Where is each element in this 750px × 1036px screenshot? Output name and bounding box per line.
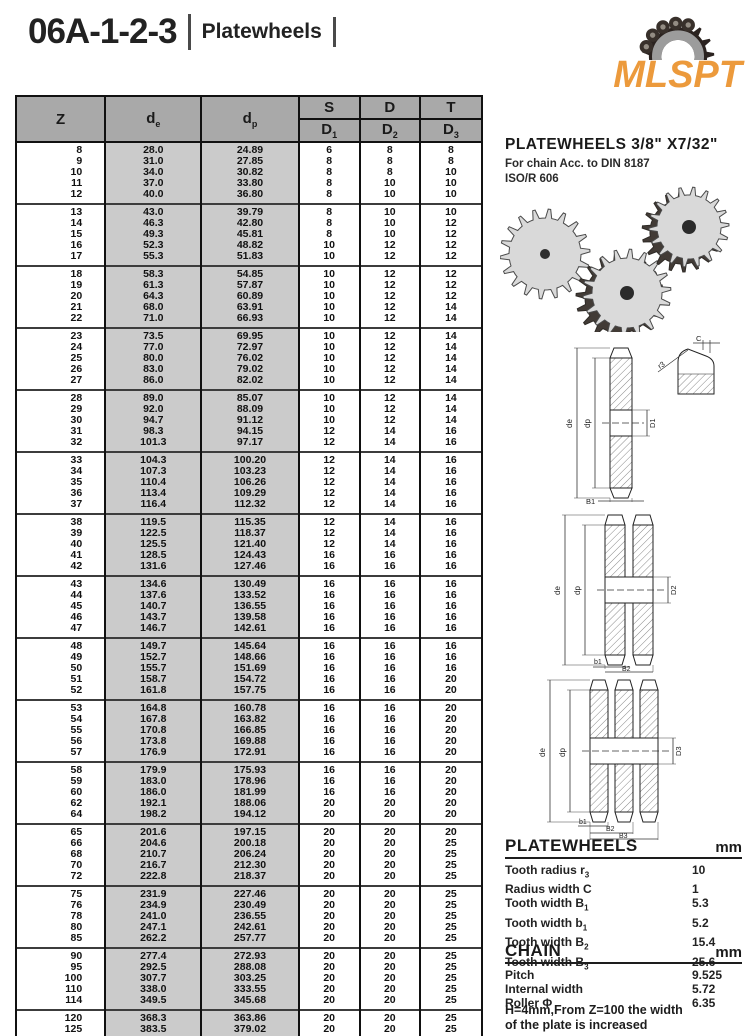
sprockets-photo [500, 182, 745, 332]
cell-z: 68 [16, 849, 105, 860]
cell-d2: 12 [360, 251, 420, 266]
cell-z: 33 [16, 452, 105, 466]
cell-z: 72 [16, 871, 105, 886]
cell-d3: 20 [420, 809, 482, 824]
cell-z: 45 [16, 601, 105, 612]
table-row: 72222.8218.37202025 [16, 871, 482, 886]
cell-de: 277.4 [105, 948, 201, 962]
table-row: 120368.3363.86202025 [16, 1010, 482, 1024]
cell-z: 16 [16, 240, 105, 251]
cell-d3: 14 [420, 390, 482, 404]
svg-text:b1: b1 [579, 819, 587, 826]
cell-d3: 25 [420, 995, 482, 1010]
cell-d3: 16 [420, 561, 482, 576]
table-row: 1240.036.8081010 [16, 189, 482, 204]
cell-d3: 16 [420, 514, 482, 528]
cell-de: 104.3 [105, 452, 201, 466]
cell-d1: 20 [299, 933, 360, 948]
cell-z: 38 [16, 514, 105, 528]
cell-z: 95 [16, 962, 105, 973]
cell-z: 66 [16, 838, 105, 849]
table-row: 37116.4112.32121416 [16, 499, 482, 514]
col-header-d3: D3 [420, 119, 482, 142]
title-divider [333, 17, 336, 47]
cell-de: 101.3 [105, 437, 201, 452]
cell-d1: 16 [299, 561, 360, 576]
cell-z: 90 [16, 948, 105, 962]
cell-de: 28.0 [105, 142, 201, 156]
cell-z: 43 [16, 576, 105, 590]
cell-dp: 157.75 [201, 685, 298, 700]
cell-dp: 175.93 [201, 762, 298, 776]
cell-de: 201.6 [105, 824, 201, 838]
cell-d1: 8 [299, 204, 360, 218]
cell-dp: 172.91 [201, 747, 298, 762]
cell-z: 49 [16, 652, 105, 663]
plate-width-note: H=4mm,From Z=100 the width of the plate … [505, 1003, 683, 1033]
cell-d3: 14 [420, 375, 482, 390]
cell-d1: 6 [299, 142, 360, 156]
cell-d2: 12 [360, 328, 420, 342]
cell-de: 149.7 [105, 638, 201, 652]
table-row: 75231.9227.46202025 [16, 886, 482, 900]
cell-z: 50 [16, 663, 105, 674]
table-row: 90277.4272.93202025 [16, 948, 482, 962]
cell-dp: 194.12 [201, 809, 298, 824]
cell-z: 29 [16, 404, 105, 415]
cell-d1: 20 [299, 886, 360, 900]
cell-z: 80 [16, 922, 105, 933]
cell-de: 119.5 [105, 514, 201, 528]
cell-dp: 69.95 [201, 328, 298, 342]
table-row: 38119.5115.35121416 [16, 514, 482, 528]
cell-z: 34 [16, 466, 105, 477]
spec-title: PLATEWHEELS [505, 836, 638, 856]
svg-text:D1: D1 [648, 418, 657, 428]
cell-z: 10 [16, 167, 105, 178]
cell-dp: 66.93 [201, 313, 298, 328]
cell-z: 100 [16, 973, 105, 984]
cell-d2: 20 [360, 871, 420, 886]
spec-header: CHAIN mm [505, 941, 742, 964]
cell-d3: 16 [420, 499, 482, 514]
table-row: 2271.066.93101214 [16, 313, 482, 328]
cell-dp: 54.85 [201, 266, 298, 280]
table-row: 33104.3100.20121416 [16, 452, 482, 466]
svg-text:dp: dp [558, 748, 567, 757]
table-row: 53164.8160.78161620 [16, 700, 482, 714]
cell-d2: 16 [360, 685, 420, 700]
col-header-d2: D2 [360, 119, 420, 142]
catalog-page: 06A-1-2-3 Platewheels MLSPT Z [0, 0, 750, 1036]
cell-z: 54 [16, 714, 105, 725]
cell-z: 58 [16, 762, 105, 776]
col-header-s: S [299, 96, 360, 119]
svg-text:C: C [696, 336, 702, 343]
cell-z: 76 [16, 900, 105, 911]
cell-dp: 379.02 [201, 1024, 298, 1036]
cell-z: 9 [16, 156, 105, 167]
cell-d2: 14 [360, 437, 420, 452]
cell-d2: 14 [360, 499, 420, 514]
cell-d1: 20 [299, 995, 360, 1010]
cell-z: 36 [16, 488, 105, 499]
cell-dp: 145.64 [201, 638, 298, 652]
table-row: 52161.8157.75161620 [16, 685, 482, 700]
cell-z: 27 [16, 375, 105, 390]
cell-d3: 12 [420, 266, 482, 280]
cell-d2: 16 [360, 576, 420, 590]
table-row: 42131.6127.46161616 [16, 561, 482, 576]
cell-z: 24 [16, 342, 105, 353]
spec-unit: mm [715, 839, 742, 856]
cell-d1: 10 [299, 375, 360, 390]
table-row: 2373.569.95101214 [16, 328, 482, 342]
cell-de: 368.3 [105, 1010, 201, 1024]
cell-d3: 16 [420, 623, 482, 638]
cell-d3: 20 [420, 762, 482, 776]
svg-text:D3: D3 [674, 746, 683, 756]
cell-de: 55.3 [105, 251, 201, 266]
cell-d3: 14 [420, 313, 482, 328]
cell-z: 22 [16, 313, 105, 328]
cell-z: 110 [16, 984, 105, 995]
cell-z: 53 [16, 700, 105, 714]
cell-d2: 12 [360, 313, 420, 328]
cell-d3: 25 [420, 871, 482, 886]
spec-row: Internal width5.72 [505, 982, 742, 996]
cell-d3: 14 [420, 328, 482, 342]
cell-z: 47 [16, 623, 105, 638]
cell-d1: 20 [299, 871, 360, 886]
cell-z: 46 [16, 612, 105, 623]
cell-de: 131.6 [105, 561, 201, 576]
cell-d1: 10 [299, 251, 360, 266]
cell-z: 39 [16, 528, 105, 539]
cell-de: 222.8 [105, 871, 201, 886]
col-header-z: Z [16, 96, 105, 142]
cell-de: 58.3 [105, 266, 201, 280]
spec-row: Tooth width B15.3 [505, 896, 742, 915]
cell-z: 52 [16, 685, 105, 700]
cell-d2: 20 [360, 933, 420, 948]
cell-z: 25 [16, 353, 105, 364]
table-row: 125383.5379.02202025 [16, 1024, 482, 1036]
cell-de: 231.9 [105, 886, 201, 900]
double-sprocket-diagram: de dp D2 b1 B2 [505, 505, 745, 673]
table-header: Z de dp S D T D1 D2 D3 [16, 96, 482, 142]
cell-d3: 25 [420, 1010, 482, 1024]
cell-dp: 100.20 [201, 452, 298, 466]
cell-dp: 51.83 [201, 251, 298, 266]
cell-d3: 25 [420, 1024, 482, 1036]
cell-d1: 10 [299, 390, 360, 404]
svg-text:de: de [538, 748, 547, 757]
svg-text:D2: D2 [669, 585, 678, 595]
cell-dp: 345.68 [201, 995, 298, 1010]
cell-d1: 10 [299, 328, 360, 342]
cell-d1: 12 [299, 499, 360, 514]
cell-z: 14 [16, 218, 105, 229]
cell-d2: 20 [360, 1010, 420, 1024]
spec-unit: mm [715, 944, 742, 961]
cell-z: 64 [16, 809, 105, 824]
spec-header: PLATEWHEELS mm [505, 836, 742, 859]
cell-z: 28 [16, 390, 105, 404]
cell-z: 85 [16, 933, 105, 948]
cell-d1: 16 [299, 747, 360, 762]
cell-z: 42 [16, 561, 105, 576]
cell-de: 179.9 [105, 762, 201, 776]
cell-z: 31 [16, 426, 105, 437]
cell-z: 15 [16, 229, 105, 240]
cell-dp: 24.89 [201, 142, 298, 156]
cell-d2: 16 [360, 638, 420, 652]
cell-z: 32 [16, 437, 105, 452]
cell-z: 21 [16, 302, 105, 313]
cell-d2: 14 [360, 514, 420, 528]
table-row: 64198.2194.12202020 [16, 809, 482, 824]
cell-d2: 10 [360, 204, 420, 218]
cell-z: 35 [16, 477, 105, 488]
cell-d3: 20 [420, 685, 482, 700]
cell-de: 176.9 [105, 747, 201, 762]
cell-z: 78 [16, 911, 105, 922]
cell-d2: 16 [360, 623, 420, 638]
cell-dp: 82.02 [201, 375, 298, 390]
col-header-t: T [420, 96, 482, 119]
cell-de: 116.4 [105, 499, 201, 514]
cell-d1: 16 [299, 700, 360, 714]
cell-z: 62 [16, 798, 105, 809]
cell-de: 71.0 [105, 313, 201, 328]
svg-text:de: de [565, 419, 574, 428]
table-body: 828.024.89688931.027.858881034.030.82881… [16, 142, 482, 1036]
svg-text:de: de [553, 586, 562, 595]
cell-dp: 115.35 [201, 514, 298, 528]
cell-d2: 14 [360, 452, 420, 466]
cell-z: 70 [16, 860, 105, 871]
svg-text:B1: B1 [586, 497, 595, 504]
cell-d3: 25 [420, 886, 482, 900]
cell-z: 17 [16, 251, 105, 266]
chain-spec-list: CHAIN mm Pitch9.525Internal width5.72Rol… [505, 941, 742, 1010]
cell-z: 120 [16, 1010, 105, 1024]
cell-z: 12 [16, 189, 105, 204]
cell-dp: 363.86 [201, 1010, 298, 1024]
cell-d1: 12 [299, 437, 360, 452]
brand-logo: MLSPT [596, 4, 744, 90]
cell-d1: 16 [299, 762, 360, 776]
cell-d1: 10 [299, 266, 360, 280]
page-title: 06A-1-2-3 Platewheels [28, 12, 347, 52]
cell-z: 55 [16, 725, 105, 736]
cell-d1: 20 [299, 1010, 360, 1024]
cell-z: 19 [16, 280, 105, 291]
cell-de: 161.8 [105, 685, 201, 700]
brand-name: MLSPT [596, 60, 744, 90]
col-header-d: D [360, 96, 420, 119]
cell-d2: 20 [360, 1024, 420, 1036]
cell-z: 65 [16, 824, 105, 838]
spec-row: Tooth width b15.2 [505, 916, 742, 935]
cell-d3: 16 [420, 437, 482, 452]
cell-z: 30 [16, 415, 105, 426]
cell-d3: 16 [420, 638, 482, 652]
cell-dp: 272.93 [201, 948, 298, 962]
table-row: 32101.397.17121416 [16, 437, 482, 452]
cell-z: 125 [16, 1024, 105, 1036]
cell-de: 73.5 [105, 328, 201, 342]
cell-z: 13 [16, 204, 105, 218]
cell-dp: 127.46 [201, 561, 298, 576]
cell-d3: 20 [420, 747, 482, 762]
cell-d3: 20 [420, 700, 482, 714]
cell-dp: 160.78 [201, 700, 298, 714]
cell-d1: 10 [299, 313, 360, 328]
cell-d3: 10 [420, 204, 482, 218]
table-row: 58179.9175.93161620 [16, 762, 482, 776]
cell-d1: 12 [299, 452, 360, 466]
cell-dp: 39.79 [201, 204, 298, 218]
svg-text:b1: b1 [594, 659, 602, 666]
title-divider [188, 14, 191, 50]
col-header-dp: dp [201, 96, 298, 142]
cell-d3: 20 [420, 824, 482, 838]
cell-d3: 25 [420, 948, 482, 962]
cell-z: 48 [16, 638, 105, 652]
cell-dp: 227.46 [201, 886, 298, 900]
cell-d1: 20 [299, 1024, 360, 1036]
cell-z: 8 [16, 142, 105, 156]
table-row: 114349.5345.68202025 [16, 995, 482, 1010]
cell-de: 198.2 [105, 809, 201, 824]
cell-d3: 12 [420, 251, 482, 266]
cell-dp: 197.15 [201, 824, 298, 838]
cell-de: 146.7 [105, 623, 201, 638]
cell-d2: 20 [360, 809, 420, 824]
cell-d2: 16 [360, 561, 420, 576]
cell-d2: 16 [360, 762, 420, 776]
cell-z: 51 [16, 674, 105, 685]
cell-z: 44 [16, 590, 105, 601]
cell-d1: 12 [299, 514, 360, 528]
spec-row: Pitch9.525 [505, 968, 742, 982]
cell-d2: 16 [360, 700, 420, 714]
cell-d2: 12 [360, 266, 420, 280]
table-row: 2786.082.02101214 [16, 375, 482, 390]
cell-z: 23 [16, 328, 105, 342]
triple-sprocket-diagram: de dp D3 b1 B2 B3 [498, 672, 750, 842]
cell-d1: 16 [299, 638, 360, 652]
cell-z: 56 [16, 736, 105, 747]
table-row: 828.024.89688 [16, 142, 482, 156]
sprocket-chain-icon [626, 4, 730, 60]
cell-z: 18 [16, 266, 105, 280]
svg-text:r3: r3 [656, 359, 667, 370]
cell-d2: 20 [360, 995, 420, 1010]
cell-z: 37 [16, 499, 105, 514]
cell-d2: 10 [360, 189, 420, 204]
cell-d2: 20 [360, 948, 420, 962]
col-header-de: de [105, 96, 201, 142]
cell-z: 40 [16, 539, 105, 550]
cell-d1: 16 [299, 623, 360, 638]
cell-d2: 12 [360, 390, 420, 404]
svg-text:dp: dp [583, 419, 592, 428]
cell-z: 59 [16, 776, 105, 787]
cell-z: 57 [16, 747, 105, 762]
cell-d1: 8 [299, 189, 360, 204]
cell-z: 75 [16, 886, 105, 900]
spec-row: Tooth radius r310 [505, 863, 742, 882]
cell-d1: 16 [299, 685, 360, 700]
spec-row: Radius width C1 [505, 882, 742, 896]
cell-dp: 85.07 [201, 390, 298, 404]
cell-de: 164.8 [105, 700, 201, 714]
cell-d3: 25 [420, 933, 482, 948]
cell-dp: 112.32 [201, 499, 298, 514]
cell-dp: 218.37 [201, 871, 298, 886]
cell-dp: 257.77 [201, 933, 298, 948]
cell-dp: 130.49 [201, 576, 298, 590]
cell-d2: 20 [360, 824, 420, 838]
cell-de: 43.0 [105, 204, 201, 218]
svg-text:B2: B2 [606, 826, 615, 833]
cell-de: 262.2 [105, 933, 201, 948]
cell-de: 349.5 [105, 995, 201, 1010]
cell-de: 383.5 [105, 1024, 201, 1036]
table-row: 2889.085.07101214 [16, 390, 482, 404]
cell-d2: 20 [360, 886, 420, 900]
cell-d2: 12 [360, 375, 420, 390]
cell-dp: 36.80 [201, 189, 298, 204]
cell-d1: 20 [299, 948, 360, 962]
svg-text:dp: dp [573, 586, 582, 595]
table-row: 65201.6197.15202020 [16, 824, 482, 838]
cell-d3: 16 [420, 452, 482, 466]
cell-dp: 97.17 [201, 437, 298, 452]
col-header-d1: D1 [299, 119, 360, 142]
table-row: 43134.6130.49161616 [16, 576, 482, 590]
cell-z: 11 [16, 178, 105, 189]
table-row: 1343.039.7981010 [16, 204, 482, 218]
cell-d2: 16 [360, 747, 420, 762]
cell-dp: 142.61 [201, 623, 298, 638]
table-row: 48149.7145.64161616 [16, 638, 482, 652]
table-row: 1858.354.85101212 [16, 266, 482, 280]
cell-z: 60 [16, 787, 105, 798]
product-title: PLATEWHEELS 3/8" X7/32" [505, 136, 718, 154]
cell-z: 41 [16, 550, 105, 561]
dimension-table: Z de dp S D T D1 D2 D3 828.024.89688931.… [15, 95, 483, 1036]
cell-de: 134.6 [105, 576, 201, 590]
single-sprocket-diagram: de dp D1 B1 C r3 [510, 336, 745, 504]
cell-d1: 20 [299, 824, 360, 838]
cell-z: 114 [16, 995, 105, 1010]
cell-d3: 8 [420, 142, 482, 156]
cell-d2: 8 [360, 142, 420, 156]
table-row: 57176.9172.91161620 [16, 747, 482, 762]
table-row: 47146.7142.61161616 [16, 623, 482, 638]
category-title: Platewheels [202, 20, 322, 44]
model-number: 06A-1-2-3 [28, 12, 177, 52]
cell-de: 40.0 [105, 189, 201, 204]
cell-z: 26 [16, 364, 105, 375]
cell-d1: 16 [299, 576, 360, 590]
spec-title: CHAIN [505, 941, 561, 961]
table-row: 1755.351.83101212 [16, 251, 482, 266]
